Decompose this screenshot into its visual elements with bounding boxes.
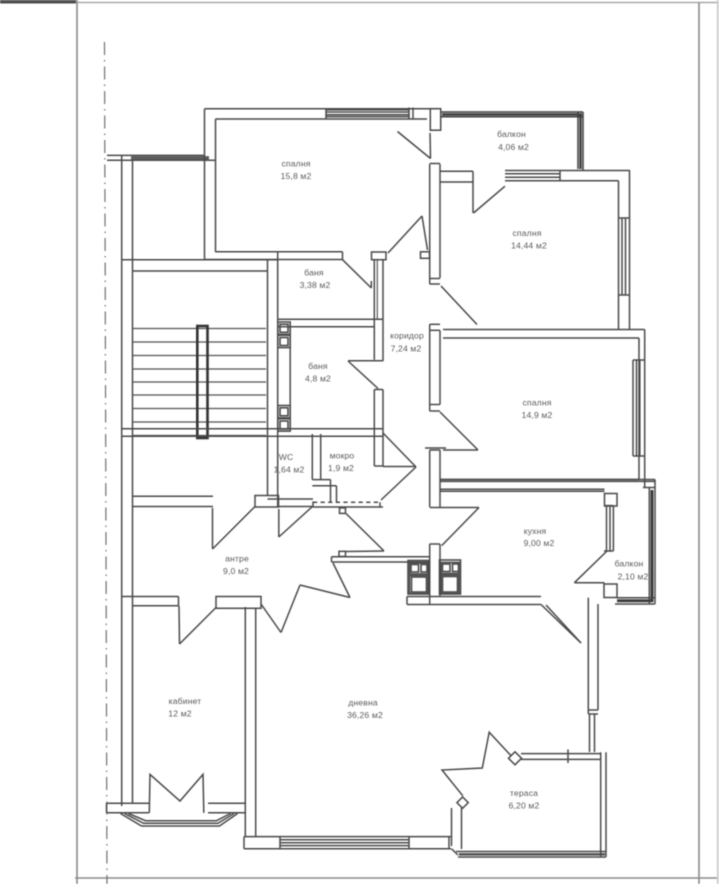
svg-text:кухня: кухня (524, 526, 547, 536)
svg-text:баня: баня (304, 268, 324, 278)
svg-text:WC: WC (279, 452, 294, 462)
svg-text:коридор: коридор (390, 331, 424, 341)
svg-text:4,8 м2: 4,8 м2 (305, 374, 331, 384)
svg-text:баня: баня (308, 361, 328, 371)
svg-text:1,64 м2: 1,64 м2 (274, 465, 305, 475)
svg-text:спалня: спалня (522, 398, 551, 408)
svg-text:6,20 м2: 6,20 м2 (509, 801, 540, 811)
svg-text:14,9 м2: 14,9 м2 (522, 410, 553, 420)
svg-text:36,26 м2: 36,26 м2 (347, 710, 383, 720)
svg-text:7,24 м2: 7,24 м2 (391, 344, 422, 354)
svg-text:балкон: балкон (615, 559, 644, 569)
svg-text:1,9 м2: 1,9 м2 (328, 463, 354, 473)
svg-text:15,8 м2: 15,8 м2 (281, 171, 312, 181)
svg-text:балкон: балкон (497, 129, 526, 139)
svg-text:мокро: мокро (330, 451, 355, 461)
svg-text:2,10 м2: 2,10 м2 (618, 572, 649, 582)
svg-text:тераса: тераса (510, 788, 538, 798)
svg-text:спалня: спалня (512, 228, 541, 238)
svg-text:кабинет: кабинет (169, 696, 202, 706)
svg-text:3,38 м2: 3,38 м2 (300, 280, 331, 290)
svg-text:дневна: дневна (348, 698, 378, 708)
svg-text:спалня: спалня (281, 159, 310, 169)
svg-text:12 м2: 12 м2 (168, 709, 191, 719)
svg-text:антре: антре (225, 554, 249, 564)
svg-text:14,44 м2: 14,44 м2 (511, 241, 547, 251)
svg-text:9,00 м2: 9,00 м2 (524, 538, 555, 548)
svg-text:4,06 м2: 4,06 м2 (498, 142, 529, 152)
svg-text:9,0 м2: 9,0 м2 (223, 566, 249, 576)
